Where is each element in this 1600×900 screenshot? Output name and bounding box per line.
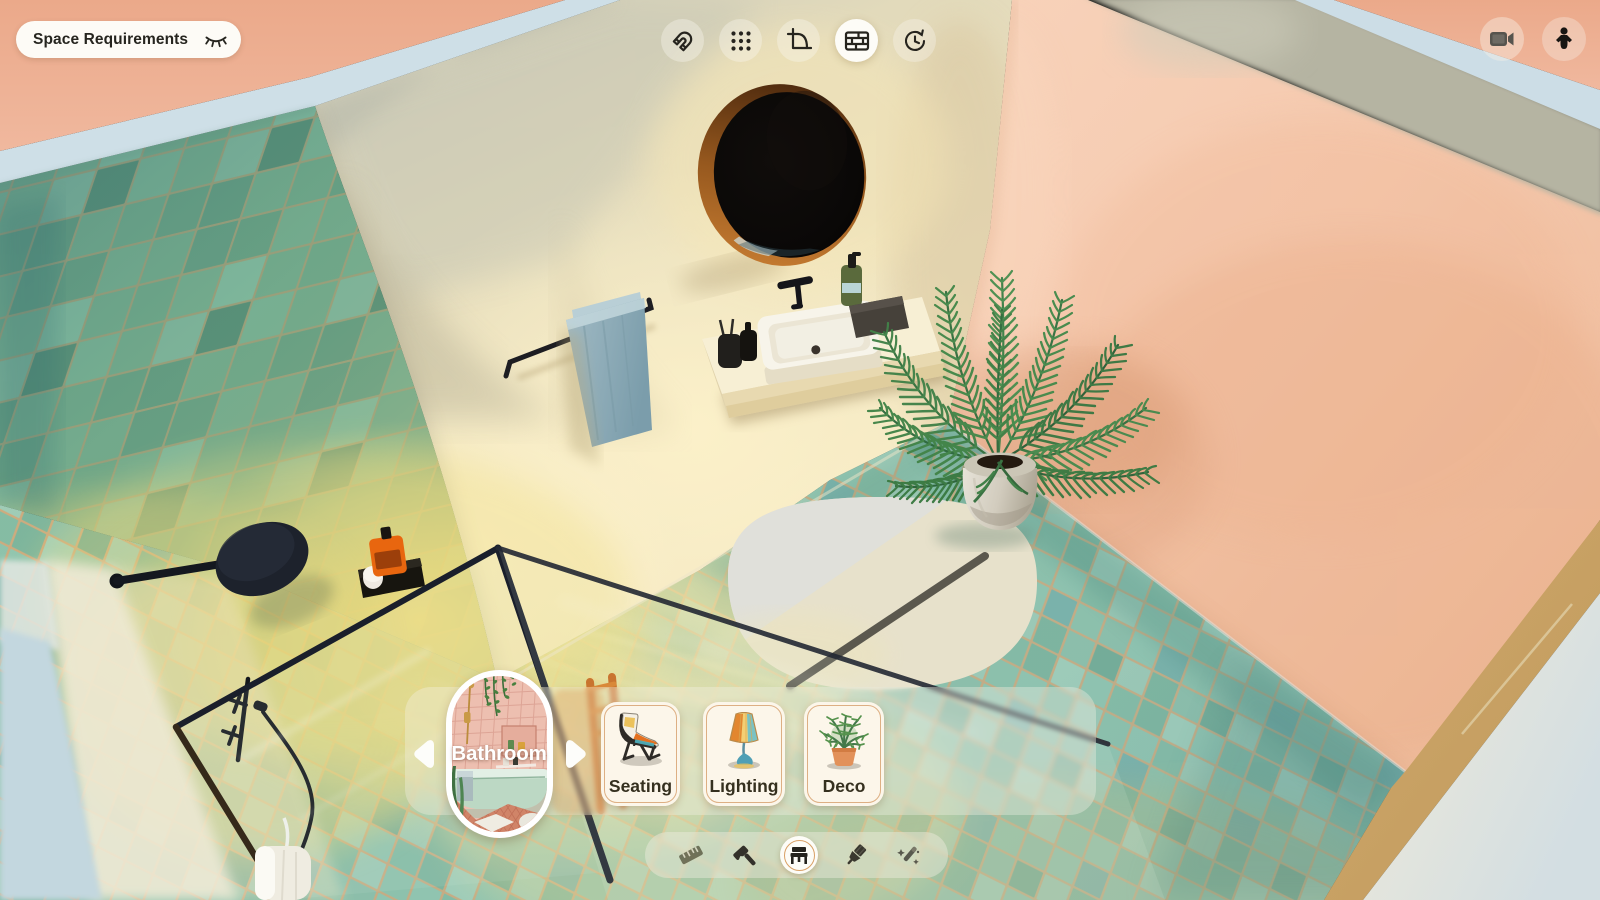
svg-text:Bathroom: Bathroom — [451, 742, 546, 765]
